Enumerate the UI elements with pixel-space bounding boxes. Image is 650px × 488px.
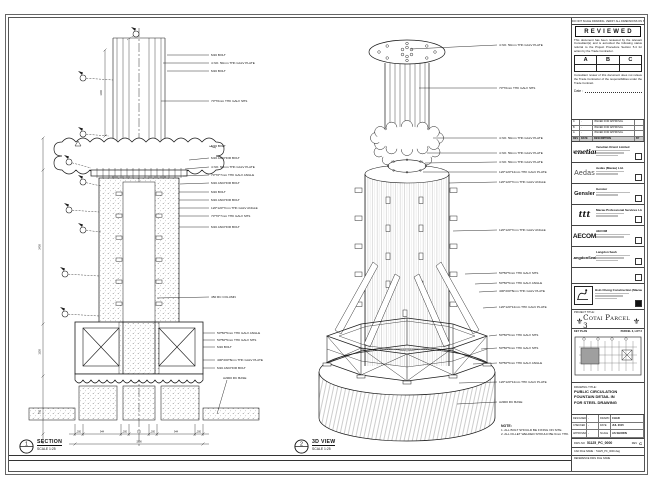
status-checkbox xyxy=(635,195,642,202)
svg-text:120*120*12mm THK GALV PLATE: 120*120*12mm THK GALV PLATE xyxy=(499,380,547,384)
svg-text:944: 944 xyxy=(174,431,179,434)
svg-text:M16 ANCHOR BOLT: M16 ANCHOR BOLT xyxy=(211,198,240,202)
svg-text:1200: 1200 xyxy=(100,90,103,96)
svg-text:M16 ANCHOR BOLT: M16 ANCHOR BOLT xyxy=(211,156,240,160)
svg-text:50*50*5mm THK GALV SHS: 50*50*5mm THK GALV SHS xyxy=(499,271,538,275)
cad-file-row: CAD FILE NAME : 51125_PC_0000.dwg xyxy=(572,448,644,456)
contractor-name: Hsin Chong Construction (Macau) Co., Ltd… xyxy=(595,288,642,292)
svg-text:M16 ANCHOR BOLT: M16 ANCHOR BOLT xyxy=(211,225,240,229)
note-line: 2. ALL FILLET WELDED SHOULD BE 6mm THK. xyxy=(501,432,575,436)
svg-text:70*70*7mm THK GALV ANGLE: 70*70*7mm THK GALV ANGLE xyxy=(211,173,254,177)
sheet-note: DO NOT SCALE DRAWING. VERIFY ALL DIMENSI… xyxy=(572,18,644,25)
svg-text:4 NO. 50mm THK GALV PLATE: 4 NO. 50mm THK GALV PLATE xyxy=(499,151,543,155)
drawing-title-box: DRAWING TITLE: PUBLIC CIRCULATION FOUNTA… xyxy=(572,383,644,415)
section-geometry xyxy=(29,27,259,446)
iso-geometry xyxy=(319,40,497,441)
svg-text:4 NO. 50mm THK GALV PLATE: 4 NO. 50mm THK GALV PLATE xyxy=(499,136,543,140)
grade-a-cell: A xyxy=(575,56,597,71)
iso-view-tag: 2 3D VIEW SCALE 1:25 xyxy=(294,439,335,454)
aecom-logo: AECOM xyxy=(573,227,596,245)
sheet-inner-border: M16 BOLT 4 NO. 50mm THK GALV PLATE M16 B… xyxy=(8,17,645,472)
svg-text:3200: 3200 xyxy=(136,441,142,444)
svg-text:50*50*5mm THK GALV SHS: 50*50*5mm THK GALV SHS xyxy=(499,346,538,350)
concrete-shaft xyxy=(99,178,179,324)
consultant-box-empty xyxy=(572,268,644,284)
status-checkbox xyxy=(635,153,642,160)
drawing-title-line: FOR STEEL DRAWING xyxy=(574,400,642,406)
foundation-piers xyxy=(79,386,199,420)
svg-text:200: 200 xyxy=(151,431,156,434)
contractor-box: Hsin Chong Construction (Macau) Co., Ltd… xyxy=(572,284,644,310)
consultant-box-venetian: venetian Venetian Orient Limited xyxy=(572,142,644,163)
svg-text:M16 ANCHOR BOLT: M16 ANCHOR BOLT xyxy=(211,181,240,185)
date-line xyxy=(585,88,642,93)
svg-text:1500: 1500 xyxy=(39,349,42,355)
section-callout-labels: M16 BOLT 4 NO. 50mm THK GALV PLATE M16 B… xyxy=(211,53,263,380)
signoff-fields: DESIGNED- DRAWNCHAD CHECKED- DATEJUL 201… xyxy=(572,415,644,439)
svg-text:4 NO. 50mm THK GALV PLATE: 4 NO. 50mm THK GALV PLATE xyxy=(211,165,255,169)
mps-logo: ttt xyxy=(573,206,596,224)
reference-row: REFERENCE DWG FILE NAME xyxy=(572,456,644,471)
rev-label: REV xyxy=(632,442,637,445)
key-plan: KEY PLAN PARCEL 3, LOT 2 xyxy=(572,329,644,383)
svg-text:750: 750 xyxy=(39,409,42,414)
iso-view-title: 3D VIEW xyxy=(312,439,335,446)
svg-text:M16 BOLT: M16 BOLT xyxy=(211,53,226,57)
svg-text:2400: 2400 xyxy=(39,244,42,250)
stamp-body-2: Consultant review of this document does … xyxy=(574,74,642,85)
title-block: DO NOT SCALE DRAWING. VERIFY ALL DIMENSI… xyxy=(571,18,644,471)
review-stamp: REVIEWED This document has been reviewed… xyxy=(572,25,644,120)
crane-bird-icon xyxy=(575,287,590,302)
svg-text:70*70mm THK GALV SHS: 70*70mm THK GALV SHS xyxy=(211,99,247,103)
grade-b-cell: B xyxy=(597,56,619,71)
svg-text:50*50*5mm THK GALV SHS: 50*50*5mm THK GALV SHS xyxy=(217,338,256,342)
consultant-box-aecom: AECOM AECOM xyxy=(572,226,644,247)
svg-text:50*50*5mm THK GALV SHS: 50*50*5mm THK GALV SHS xyxy=(499,333,538,337)
svg-text:120*120*12mm THK GALV PLATE: 120*120*12mm THK GALV PLATE xyxy=(499,305,547,309)
svg-text:200: 200 xyxy=(77,431,82,434)
bottom-rule xyxy=(9,455,571,456)
key-plan-highlight xyxy=(581,348,599,364)
cad-file-value: 51125_PC_0000.dwg xyxy=(596,450,620,453)
drawing-number-row: DWG NO 51125_PC_0000 REV C xyxy=(572,439,644,448)
svg-text:400*200*8mm THK GALV PLATE: 400*200*8mm THK GALV PLATE xyxy=(217,358,263,362)
project-name: Cotai Parcel 3 xyxy=(583,314,633,330)
svg-text:120*120*7mm THK GALV ANGLE: 120*120*7mm THK GALV ANGLE xyxy=(211,206,258,210)
date-label: Date : xyxy=(574,89,583,93)
grade-c-cell: C xyxy=(620,56,641,71)
section-view-title: SECTION xyxy=(37,439,62,446)
rev-value: C xyxy=(639,441,642,446)
langdonseah-logo: LangdonSeah xyxy=(573,248,596,266)
iso-view-drawing: 4 NO. 50mm THK GALV PLATE 70*70mm THK GA… xyxy=(307,22,577,452)
dwg-no-label: DWG NO xyxy=(574,442,585,445)
svg-text:4 NO. 50mm THK GALV PLATE: 4 NO. 50mm THK GALV PLATE xyxy=(211,61,255,65)
bottom-rule xyxy=(9,460,571,461)
section-detail-bubble: 1 xyxy=(19,439,34,454)
dwg-no-value: 51125_PC_0000 xyxy=(587,441,630,445)
stamp-title: REVIEWED xyxy=(575,26,641,37)
svg-text:200: 200 xyxy=(197,431,202,434)
top-plate xyxy=(369,40,445,64)
svg-text:M16 BOLT: M16 BOLT xyxy=(211,144,226,148)
svg-text:70*70*7mm THK GALV SHS: 70*70*7mm THK GALV SHS xyxy=(211,214,250,218)
svg-text:512: 512 xyxy=(137,431,142,434)
drawing-area: M16 BOLT 4 NO. 50mm THK GALV PLATE M16 B… xyxy=(9,18,571,471)
svg-text:M16 BOLT: M16 BOLT xyxy=(211,190,226,194)
fleur-emblem-left: ⚜ xyxy=(576,318,583,326)
svg-text:M16 BOLT: M16 BOLT xyxy=(211,69,226,73)
svg-text:M16 ANCHOR BOLT: M16 ANCHOR BOLT xyxy=(217,366,246,370)
status-checkbox xyxy=(635,237,642,244)
svg-text:50*50*5mm THK GALV ANGLE: 50*50*5mm THK GALV ANGLE xyxy=(499,281,542,285)
svg-text:M16 BOLT: M16 BOLT xyxy=(217,345,232,349)
collar-flange xyxy=(387,159,427,173)
svg-text:4 NO. 50mm THK GALV PLATE: 4 NO. 50mm THK GALV PLATE xyxy=(499,160,543,164)
svg-text:944: 944 xyxy=(100,431,105,434)
section-view-scale: SCALE 1:25 xyxy=(37,447,62,451)
iso-view-scale: SCALE 1:25 xyxy=(312,447,335,451)
svg-text:120*120*7mm THK GALV ANGLE: 120*120*7mm THK GALV ANGLE xyxy=(499,180,546,184)
stamp-grade-boxes: A B C xyxy=(574,55,642,72)
svg-text:A2900 RC BASE: A2900 RC BASE xyxy=(223,376,246,380)
svg-text:450 RC COLUMN: 450 RC COLUMN xyxy=(211,295,236,299)
status-checkbox xyxy=(635,274,642,281)
svg-text:400*200*8mm THK GALV PLATE: 400*200*8mm THK GALV PLATE xyxy=(499,289,545,293)
svg-text:4 NO. 50mm THK GALV PLATE: 4 NO. 50mm THK GALV PLATE xyxy=(499,43,543,47)
general-notes: NOTE: 1. ALL BOLT SHOULD BE FIXING ON SI… xyxy=(501,424,575,436)
braced-base-box xyxy=(75,322,203,374)
iso-callout-labels: 4 NO. 50mm THK GALV PLATE 70*70mm THK GA… xyxy=(499,43,547,404)
venetian-logo: venetian xyxy=(573,143,596,161)
fleur-emblem-right: ⚜ xyxy=(633,318,640,326)
section-view-drawing: M16 BOLT 4 NO. 50mm THK GALV PLATE M16 B… xyxy=(17,22,307,452)
consultant-box-gensler: Gensler Gensler xyxy=(572,184,644,205)
revision-table: C- ISSUED FOR APPROVAL B- ISSUED FOR APP… xyxy=(572,120,644,142)
status-checkbox xyxy=(635,216,642,223)
project-title-band: PROJECT TITLE: ⚜ Cotai Parcel 3 ⚜ xyxy=(572,310,644,329)
stamp-date-row: Date : xyxy=(574,88,642,93)
svg-text:2: 2 xyxy=(300,442,303,448)
svg-text:1: 1 xyxy=(25,442,28,448)
consultant-box-mps: ttt Macau Professional Services Ltd. xyxy=(572,205,644,226)
svg-text:50*50*5mm THK GALV ANGLE: 50*50*5mm THK GALV ANGLE xyxy=(217,331,260,335)
status-checkbox xyxy=(635,258,642,265)
status-checkbox xyxy=(635,174,642,181)
cad-drawing-sheet: { "stamp": { "top_note": "DO NOT SCALE D… xyxy=(0,0,650,488)
svg-text:200: 200 xyxy=(123,431,128,434)
consultant-box-aedas: Aedas Aedas (Macau) Ltd. xyxy=(572,163,644,184)
contractor-logo xyxy=(574,286,593,305)
svg-text:A2900 RC BASE: A2900 RC BASE xyxy=(499,400,522,404)
iso-detail-bubble: 2 xyxy=(294,439,309,454)
svg-text:50*50*5mm THK GALV ANGLE: 50*50*5mm THK GALV ANGLE xyxy=(499,361,542,365)
svg-text:120*120*7mm THK GALV ANGLE: 120*120*7mm THK GALV ANGLE xyxy=(499,228,546,232)
section-view-tag: 1 SECTION SCALE 1:25 xyxy=(19,439,62,454)
stamp-body-1: This document has been reviewed by the r… xyxy=(574,39,642,54)
key-plan-drawing xyxy=(574,333,642,377)
status-checkbox-filled xyxy=(635,300,642,307)
revision-header: REVDATE DESCRIPTIONBY xyxy=(572,137,644,142)
svg-text:70*70mm THK GALV SHS: 70*70mm THK GALV SHS xyxy=(499,86,535,90)
svg-text:120*120*12mm THK GALV PLATE: 120*120*12mm THK GALV PLATE xyxy=(499,170,547,174)
aedas-logo: Aedas xyxy=(573,164,596,182)
sheet-border: M16 BOLT 4 NO. 50mm THK GALV PLATE M16 B… xyxy=(5,14,648,475)
gensler-logo: Gensler xyxy=(573,185,596,203)
consultant-box-langdonseah: LangdonSeah Langdon Seah xyxy=(572,247,644,268)
